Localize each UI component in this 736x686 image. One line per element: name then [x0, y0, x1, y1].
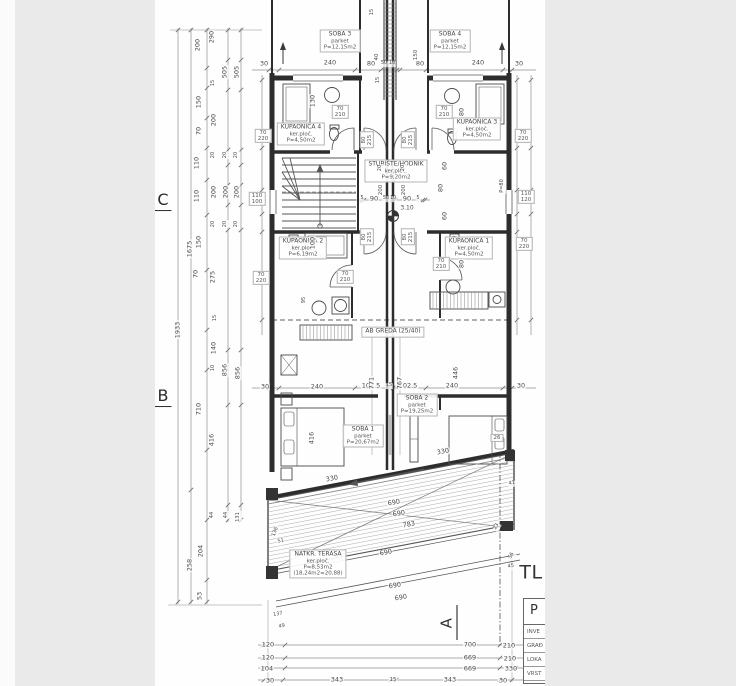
beam-label-ab-greda-25-40: AB GREDA (25/40) [361, 327, 424, 338]
dimension-label: 290 [208, 30, 215, 44]
label-line: P=12,15m2 [324, 44, 357, 50]
dimension-label: 70 [192, 269, 199, 279]
dimension-label: 30 [516, 382, 526, 389]
background-mask-left [0, 0, 155, 686]
door-size-tag: 70210 [332, 105, 349, 119]
dimension-label: 140 [210, 341, 217, 355]
dimension-label: 20 [234, 151, 240, 159]
dimension-label: 275 [209, 270, 216, 284]
dimension-label: 240 [310, 383, 324, 390]
section-marker-a: A [439, 618, 456, 629]
label-line: SOBA 3 [324, 31, 357, 38]
dimension-label: 330 [324, 474, 340, 484]
dimension-label: 200 [233, 185, 240, 199]
grid-axis-c: C [154, 191, 171, 211]
dimension-label: 690 [386, 498, 402, 508]
dimension-label: 30 [514, 60, 524, 67]
label-line: KUPAONICA 2 [283, 238, 323, 245]
dimension-label: 690 [391, 509, 407, 519]
label-line: P=9,20m2 [368, 174, 423, 180]
dimension-label: 690 [387, 581, 403, 591]
dimension-label: 45 [506, 563, 515, 570]
dimension-label: 710 [195, 402, 202, 416]
room-kupaonica-1: KUPAONICA 1ker.ploč.P=4,50m2 [445, 236, 493, 259]
dimension-label: 95 [302, 296, 308, 304]
label-line: P=4,50m2 [449, 251, 489, 257]
door-size-tag: 80215 [401, 229, 415, 246]
dimension-label: 15 [370, 8, 376, 16]
dimension-label: 1675 [186, 240, 193, 259]
label-line: P=6,19m2 [283, 251, 323, 257]
room-soba-2: SOBA 2parketP=19,25m2 [397, 393, 438, 416]
dimension-label: 60 [441, 161, 448, 171]
dimension-label: 44 [210, 511, 216, 519]
door-size-tag: 80215 [401, 132, 415, 149]
label-line: P=20,67m2 [347, 439, 380, 445]
door-size-tag: 80215 [360, 229, 374, 246]
dimension-label: 20 [223, 220, 229, 228]
dimension-label: 505 [221, 65, 228, 79]
dimension-label: 131 [236, 511, 242, 523]
label-line: AB GREDA (25/40) [365, 329, 420, 336]
dimension-label: 690 [378, 548, 394, 558]
dimension-label: 15 [376, 76, 382, 84]
dimension-label: 80 [415, 60, 425, 67]
dimension-label: 416 [208, 433, 215, 447]
dimension-label: 330 [435, 447, 451, 457]
label-line: 215 [367, 232, 373, 243]
page-edge [0, 0, 15, 686]
label-line: (18,24m2=20,88) [293, 570, 342, 576]
dimension-label: 53 [196, 591, 203, 601]
room-soba-3: SOBA 3parketP=12,15m2 [320, 29, 361, 52]
label-line: 220 [256, 278, 267, 284]
dimension-label: 330 [504, 665, 518, 672]
dimension-label: 15 [213, 314, 219, 322]
label-line: 210 [439, 112, 450, 118]
dimension-label: 690 [393, 593, 409, 603]
dimension-label: P=80 [500, 178, 506, 194]
dimension-label: 51 [276, 538, 285, 545]
room-kupaonica-3: KUPAONICA 3ker.ploč.P=4,50m2 [453, 117, 501, 140]
dimension-label: 30 [498, 677, 508, 684]
dimension-label: 210 [503, 655, 517, 662]
label-line: 220 [518, 136, 529, 142]
floor-plan-viewer: SOBA 3parketP=12,15m2SOBA 4parketP=12,15… [0, 0, 736, 686]
label-line: 210 [436, 264, 447, 270]
label-line: P=4,50m2 [457, 132, 497, 138]
grid-axis-b: B [155, 387, 172, 407]
dimension-label: 856 [234, 366, 241, 380]
label-line: SOBA 4 [434, 31, 467, 38]
label-line: 100 [252, 199, 263, 205]
dimension-label: 200 [210, 185, 217, 199]
dimension-label: 200 [194, 38, 201, 52]
background-mask-right [545, 0, 736, 686]
dimension-label: 60 [441, 211, 448, 221]
label-line: 220 [258, 136, 269, 142]
door-size-tag: 26 [491, 434, 504, 442]
label-line: P=12,15m2 [434, 44, 467, 50]
label-line: 210 [340, 277, 351, 283]
dimension-label: 10 [211, 364, 217, 372]
dimension-label: 136 [271, 526, 280, 539]
dimension-label: 856 [221, 363, 228, 377]
room-stubiste-hodnik: STUBIŠTE/HODNIKker.ploč.P=9,20m2 [364, 159, 427, 182]
door-size-tag: 70220 [515, 129, 532, 143]
room-kupaonica-4: KUPAONICA 4ker.ploč.P=4,50m2 [277, 122, 325, 145]
dimension-label: 10 [389, 196, 397, 202]
dimension-label: 100 [309, 236, 316, 250]
dimension-label: 505 [233, 65, 240, 79]
dimension-label: 20 [211, 151, 217, 159]
dimension-label: 30 [260, 383, 270, 390]
dimension-label: 120 [261, 654, 275, 661]
label-line: 215 [408, 232, 414, 243]
door-size-tag: 70210 [337, 270, 354, 284]
label-line: KUPAONICA 1 [449, 238, 489, 245]
dimension-label: 700 [463, 641, 477, 648]
dimension-label: 80 [437, 183, 444, 193]
room-soba-4: SOBA 4parketP=12,15m2 [430, 29, 471, 52]
door-size-tag: 70220 [253, 271, 270, 285]
dimension-label: 23 [492, 522, 501, 532]
dimension-label: 137 [272, 611, 284, 619]
dimension-label: 669 [463, 665, 477, 672]
label-line: 215 [408, 135, 414, 146]
dimension-label: 120 [261, 641, 275, 648]
dimension-label: 767 [396, 376, 403, 390]
dimension-label: 783 [401, 520, 417, 530]
dimension-label: 41 [507, 480, 516, 487]
dimension-label: 90 [402, 195, 412, 202]
door-size-tag: 80215 [360, 132, 374, 149]
dimension-label: 1933 [174, 321, 181, 340]
dimension-label: 150 [413, 49, 419, 62]
label-line: P=4,50m2 [281, 137, 321, 143]
dimension-label: 210 [502, 642, 516, 649]
dimension-label: 200 [222, 185, 229, 199]
door-size-tag: 110100 [249, 192, 266, 206]
room-natkrivena-terasa: NATKR. TERASAker.ploč.P=8,53m2(18,24m2=2… [289, 549, 346, 578]
dimension-label: 49 [277, 623, 286, 630]
dimension-label: 3.10 [399, 206, 414, 213]
dimension-label: 669 [463, 654, 477, 661]
label-line: SOBA 1 [347, 426, 380, 433]
dimension-label: 44 [224, 511, 230, 519]
dimension-label: 150 [195, 235, 202, 249]
dimension-label: 20 [223, 151, 229, 159]
dimension-label: 20 [378, 164, 384, 172]
dimension-label: 240 [471, 59, 485, 66]
dimension-label: 30 [265, 677, 275, 684]
dimension-label: 258 [186, 558, 193, 572]
door-size-tag: 70210 [436, 105, 453, 119]
room-kupaonica-2: KUPAONICA 2ker.ploč.P=6,19m2 [279, 236, 327, 259]
label-line: 26 [494, 435, 501, 441]
dimension-label: 90 [369, 195, 379, 202]
label-line: KUPAONICA 3 [457, 119, 497, 126]
dimension-label: 446 [452, 366, 459, 380]
dimension-label: 70 [195, 126, 202, 136]
dimension-label: 110 [193, 156, 200, 170]
dimension-label: 80 [458, 107, 465, 117]
drawing-title-partial-text: TL [519, 562, 542, 583]
door-size-tag: 70210 [433, 257, 450, 271]
dimension-label: 20 [401, 164, 407, 172]
dimension-label: 204 [197, 544, 204, 558]
label-line: 220 [519, 244, 530, 250]
dimension-label: 40 [374, 53, 380, 62]
dimension-label: 15 [211, 79, 217, 87]
dimension-label: 56 [507, 551, 516, 561]
dimension-label: 240 [323, 59, 337, 66]
label-line: 120 [521, 197, 532, 203]
dimension-label: 343 [443, 676, 457, 683]
dimension-label: 110 [193, 189, 200, 203]
label-line: P=19,25m2 [401, 408, 434, 414]
door-size-tag: 70220 [255, 129, 272, 143]
dimension-label: 30 [259, 60, 269, 67]
dimension-label: 771 [368, 376, 375, 390]
door-size-tag: 110120 [518, 190, 535, 204]
dimension-label: 104 [260, 665, 274, 672]
dimension-label: 10 [388, 61, 396, 67]
dimension-label: 15 [389, 677, 398, 683]
dimension-label: 15 [385, 383, 393, 389]
dimension-label: 343 [330, 676, 344, 683]
dimension-label: 240 [445, 382, 459, 389]
dimension-label: 416 [308, 431, 315, 445]
door-size-tag: 70220 [516, 237, 533, 251]
label-line: 210 [335, 112, 346, 118]
room-soba-1: SOBA 1parketP=20,67m2 [343, 424, 384, 447]
label-line: SOBA 2 [401, 395, 434, 402]
dimension-label: 150 [195, 95, 202, 109]
dimension-label: 80 [458, 259, 465, 269]
dimension-label: 130 [309, 94, 316, 108]
label-line: KUPAONICA 4 [281, 124, 321, 131]
dimension-label: 200 [210, 113, 217, 127]
label-line: NATKR. TERASA [293, 551, 342, 558]
dimension-label: 20 [211, 220, 217, 228]
dimension-label: 20 [234, 220, 240, 228]
dimension-label: 5 [359, 196, 364, 202]
label-line: 215 [367, 135, 373, 146]
dimension-label: 5 [415, 196, 420, 202]
